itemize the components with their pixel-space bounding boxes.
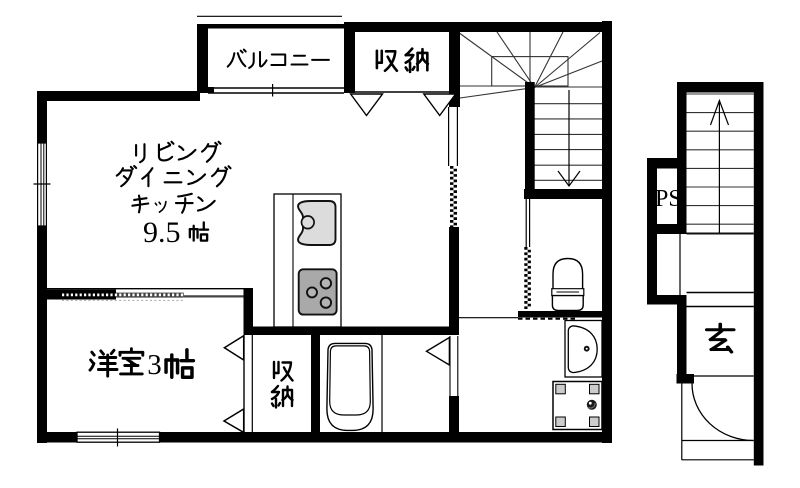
svg-text:PS: PS bbox=[655, 186, 682, 212]
svg-text:3: 3 bbox=[147, 349, 162, 381]
svg-text:9.5: 9.5 bbox=[143, 216, 181, 249]
